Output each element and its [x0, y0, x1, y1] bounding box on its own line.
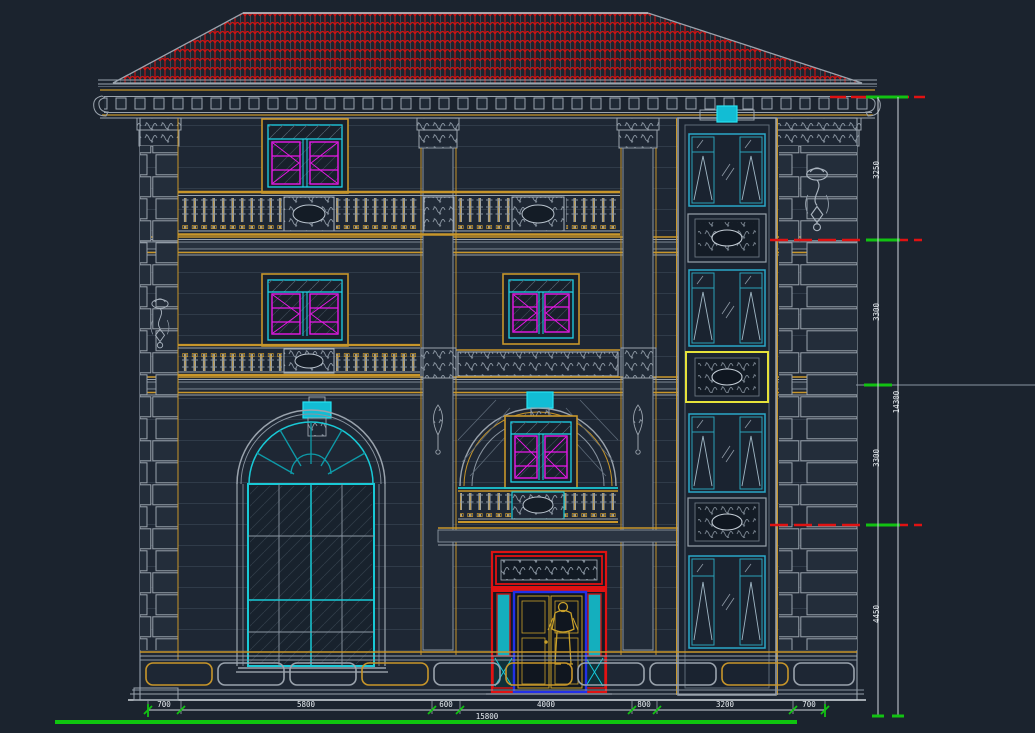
shaft-cartouche-panel-yellow — [686, 352, 768, 402]
door-pedestal-left — [493, 656, 514, 688]
dim-text-bottom-4: 4000 — [537, 700, 556, 709]
pilaster-left-outer — [137, 118, 181, 660]
window-third-floor-left — [262, 119, 348, 193]
dim-text-bottom-overall: 15800 — [476, 712, 499, 721]
door-pilaster-left — [497, 594, 510, 656]
door-pilaster-right — [588, 594, 601, 656]
pilaster-right-outer — [773, 118, 861, 660]
right-window-shaft — [677, 106, 778, 695]
door-handle — [544, 640, 548, 644]
entrance-door — [486, 552, 612, 694]
dim-text-bottom-5: 800 — [637, 700, 651, 709]
dim-text-right-4: 4450 — [872, 604, 881, 623]
elevation-drawing: 3250 3300 3300 4450 14300 700 5800 600 4… — [0, 0, 1035, 733]
dim-text-bottom-2: 5800 — [297, 700, 316, 709]
shaft-cartouche-panel-1 — [688, 214, 766, 262]
window-arch-center — [505, 416, 577, 488]
dim-text-right-3: 3300 — [872, 448, 881, 467]
balcony-center-over-entrance — [458, 488, 618, 522]
cad-canvas[interactable]: 3250 3300 3300 4450 14300 700 5800 600 4… — [0, 0, 1035, 733]
balcony-third-floor — [178, 192, 620, 235]
window-second-floor-center — [503, 274, 579, 344]
dim-text-bottom-3: 600 — [439, 700, 453, 709]
shaft-keystone — [717, 106, 737, 122]
dim-text-right-2: 3300 — [872, 302, 881, 321]
door-frieze-relief — [501, 560, 597, 580]
keystone — [527, 392, 553, 408]
frieze-panel-second-floor-center — [421, 348, 656, 378]
pilaster-center-right — [617, 118, 659, 655]
dentil-band — [104, 96, 872, 112]
dim-text-bottom-6: 3200 — [716, 700, 735, 709]
door-blue-frame — [514, 592, 586, 692]
quoin-blocks — [140, 146, 178, 650]
window-second-floor-left — [262, 274, 348, 346]
shaft-cartouche-panel-3 — [688, 498, 766, 546]
dim-text-bottom-7: 700 — [802, 700, 816, 709]
dim-text-right-overall: 14300 — [892, 390, 901, 413]
dim-text-bottom-1: 700 — [157, 700, 171, 709]
dim-text-right-1: 3250 — [872, 160, 881, 179]
